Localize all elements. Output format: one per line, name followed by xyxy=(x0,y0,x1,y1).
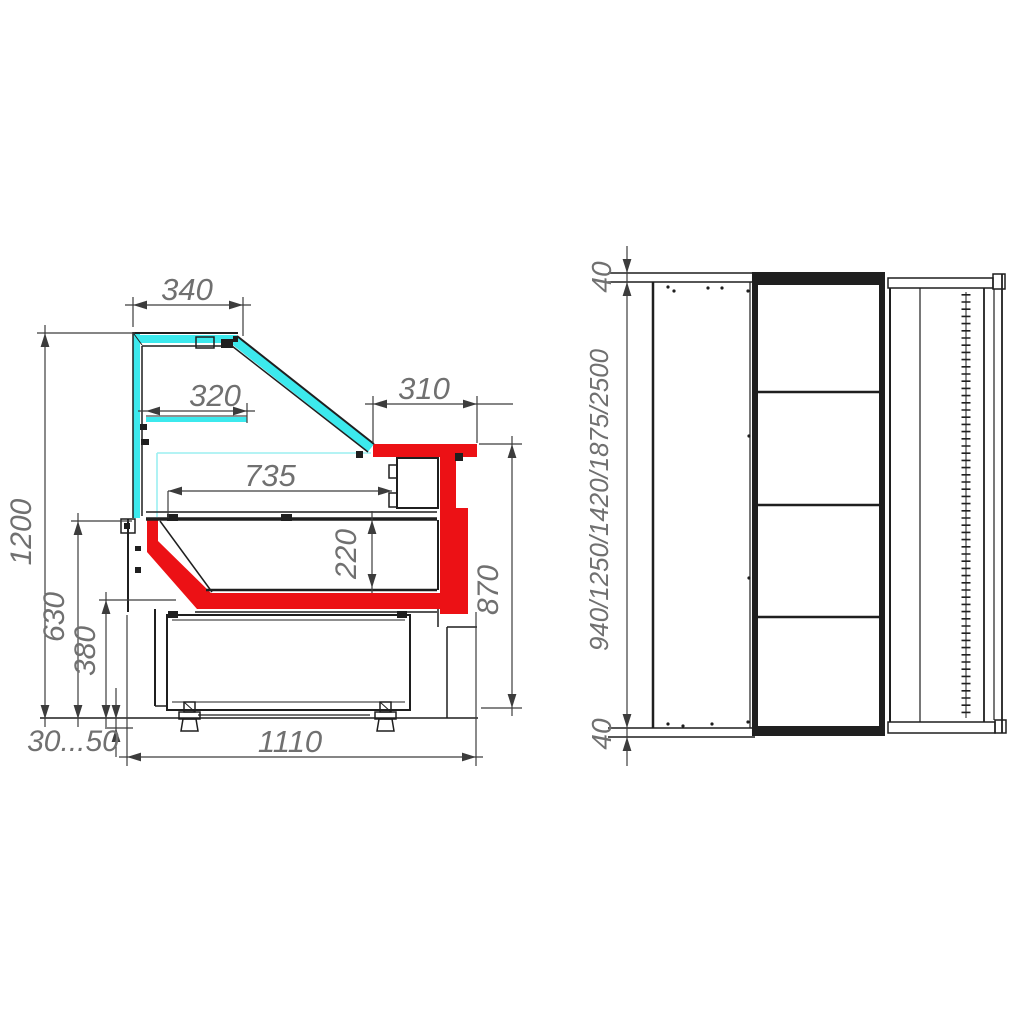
dim-display-depth-label: 735 xyxy=(244,458,296,493)
plan-glass-bottom-cap xyxy=(995,720,1006,733)
dim-panel-height-label: 380 xyxy=(69,626,102,676)
drawing-svg: 340 320 310 xyxy=(0,0,1024,1024)
evaporator-notch-upper xyxy=(389,465,397,478)
dim-canopy-width: 340 xyxy=(125,272,251,336)
deck-mark-mid xyxy=(281,514,292,521)
dim-end-overhang-bottom-label: 40 xyxy=(586,718,617,750)
technical-drawing-page: 340 320 310 xyxy=(0,0,1024,1024)
bumper-screw-upper xyxy=(135,546,141,551)
front-panel-bracket-pin xyxy=(124,523,130,529)
dim-shelf-width-label: 320 xyxy=(189,378,241,413)
dimensions-plan-view: 40 940/1250/1420/1875/2500 40 xyxy=(584,246,631,766)
dim-worktop-overhang-label: 310 xyxy=(398,371,450,406)
dim-worktop-overhang: 310 xyxy=(365,371,513,443)
red-bottom-band xyxy=(197,593,468,609)
dim-end-overhang-top-label: 40 xyxy=(586,261,617,293)
dim-well-depth: 220 xyxy=(330,511,376,593)
dim-leg-adjust-label: 30...50 xyxy=(27,725,119,758)
red-bottom-step xyxy=(440,608,468,614)
dim-base-depth: 1110 xyxy=(119,612,483,766)
sloped-glass-outer-line xyxy=(237,336,374,444)
shelf-clip-upper xyxy=(140,424,147,430)
plan-view: 40 940/1250/1420/1875/2500 40 xyxy=(584,246,1006,766)
dim-front-height-label: 630 xyxy=(38,592,71,642)
worktop-screw-left xyxy=(356,451,363,458)
dim-leg-adjust: 30...50 xyxy=(27,688,133,758)
red-front-bumper xyxy=(147,518,212,609)
dim-well-depth-label: 220 xyxy=(330,529,363,580)
shelf-glass xyxy=(146,417,247,422)
front-glass xyxy=(133,334,140,518)
dim-overall-height-label: 1200 xyxy=(5,498,38,565)
dim-length-options-label: 940/1250/1420/1875/2500 xyxy=(584,348,614,651)
canopy-latch-pin xyxy=(233,336,238,342)
plan-glass-top-rail xyxy=(888,278,993,288)
dim-worktop-height: 870 xyxy=(472,436,522,716)
red-column xyxy=(440,455,456,595)
bumper-screw-lower xyxy=(135,567,141,573)
worktop-screw-right xyxy=(455,453,463,461)
foot-right xyxy=(375,702,396,731)
deck-mark-left xyxy=(167,514,178,521)
sloped-glass-inner-line xyxy=(232,346,368,452)
red-accent-profile xyxy=(147,444,477,614)
shelf-clip-lower xyxy=(141,439,149,445)
evaporator-notch-lower xyxy=(389,493,397,507)
base-corner-right xyxy=(397,611,407,618)
evaporator-box xyxy=(397,458,438,508)
canopy-latch-block xyxy=(221,339,233,348)
plan-body xyxy=(608,272,1006,737)
sloped-glass xyxy=(235,341,371,448)
plan-glass-top-cap xyxy=(993,274,1005,289)
plan-rivets xyxy=(666,285,750,727)
dim-front-height: 630 xyxy=(38,513,132,727)
dim-base-depth-label: 1110 xyxy=(258,724,322,759)
base-cabinet xyxy=(167,615,410,710)
plan-glass-bottom-rail xyxy=(888,722,995,733)
dim-canopy-width-label: 340 xyxy=(161,272,213,307)
foot-left xyxy=(179,702,200,731)
dim-display-depth: 735 xyxy=(168,458,392,518)
dim-worktop-height-label: 870 xyxy=(472,565,505,615)
base-corner-left xyxy=(168,611,178,618)
side-section-view: 340 320 310 xyxy=(5,272,522,766)
